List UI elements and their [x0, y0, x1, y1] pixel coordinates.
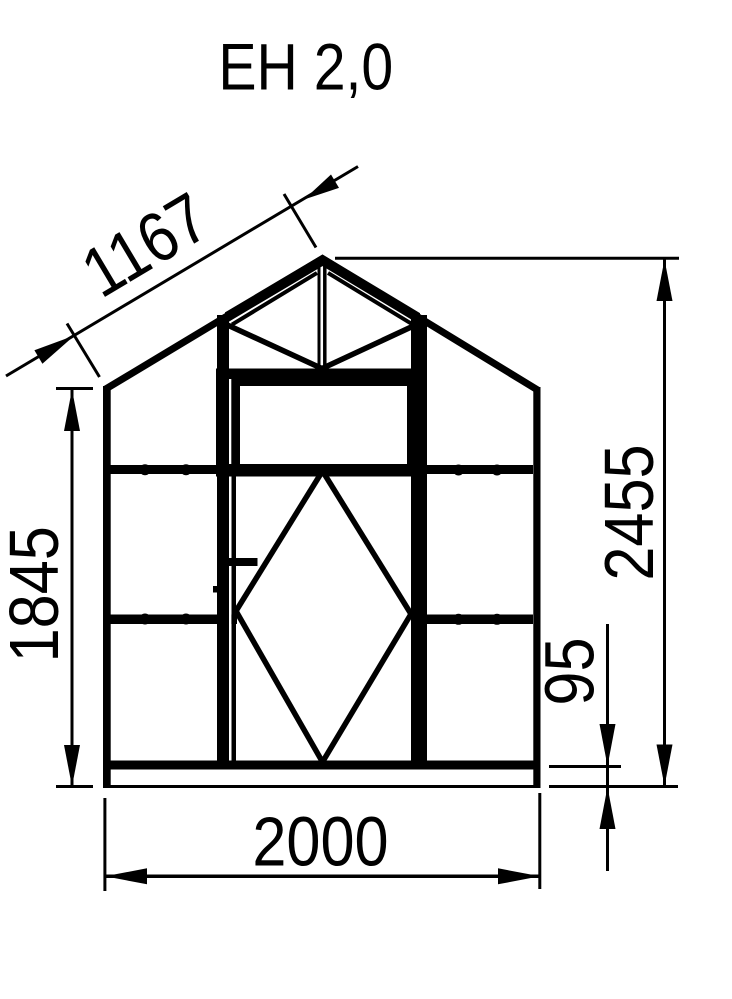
svg-text:2000: 2000: [252, 802, 388, 881]
svg-text:2455: 2455: [589, 444, 668, 580]
svg-text:EH 2,0: EH 2,0: [218, 31, 393, 105]
svg-text:1845: 1845: [0, 526, 73, 662]
svg-text:95: 95: [530, 637, 609, 705]
